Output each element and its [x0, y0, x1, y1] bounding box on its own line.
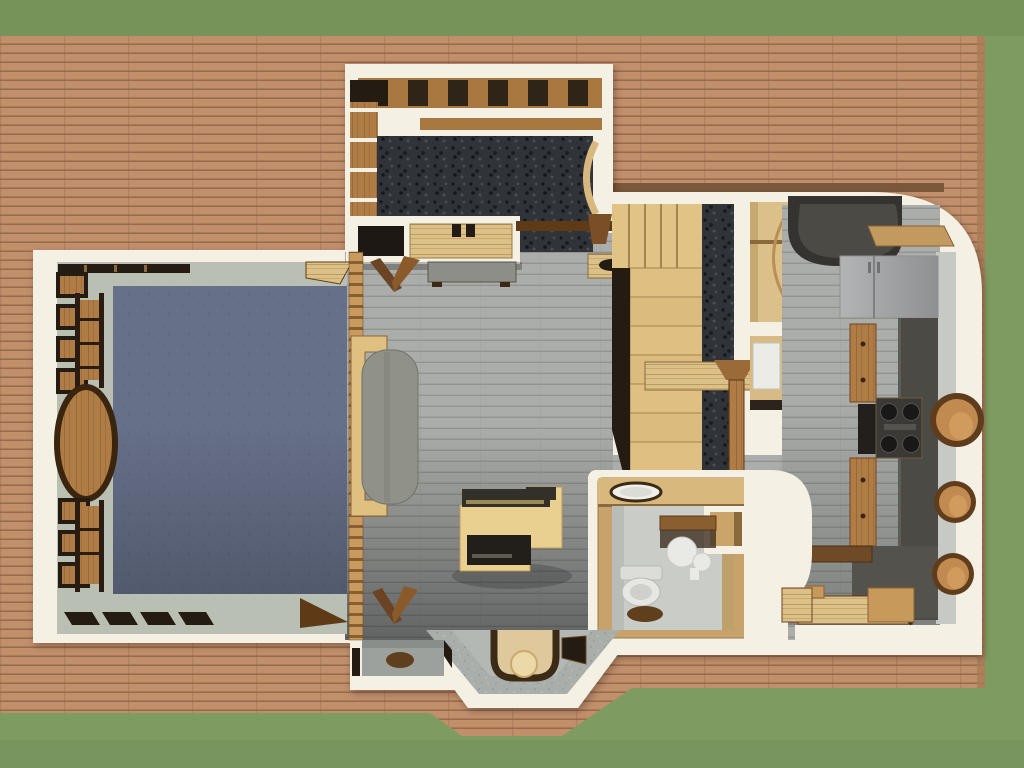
- cabinet-knob: [861, 514, 866, 519]
- upper-cabinets: [850, 324, 876, 402]
- cabinet-rung: [78, 318, 102, 321]
- oval-wood-table: [57, 387, 115, 499]
- tread: [630, 413, 704, 442]
- alcove-rug: [386, 652, 414, 668]
- beam-gap: [568, 80, 588, 106]
- window-mullion: [84, 265, 87, 272]
- bench-leg: [500, 282, 510, 287]
- cabinet-rung: [78, 552, 102, 555]
- burner: [881, 436, 898, 453]
- lawn-bottom-shade: [0, 740, 1024, 768]
- burner: [903, 404, 920, 421]
- stair-landing: [612, 204, 704, 268]
- bath-rug: [627, 606, 663, 622]
- landing-seam: [676, 204, 678, 268]
- tread: [630, 326, 704, 355]
- wall-shelf: [660, 516, 716, 530]
- cross-beam: [420, 118, 602, 130]
- shelf-divider: [350, 198, 378, 202]
- cabinet-knob: [861, 342, 866, 347]
- ladder-cabinet-upper: [75, 293, 104, 388]
- cabinet-rail: [99, 293, 104, 388]
- cabinet-rung: [78, 366, 102, 369]
- tread: [630, 442, 704, 471]
- cabinet-rail: [99, 500, 104, 592]
- wood-step: [782, 588, 812, 622]
- cabinet-knob: [861, 378, 866, 383]
- toilet-seat: [630, 584, 652, 600]
- fixture-pipe: [690, 568, 699, 580]
- burner: [881, 404, 898, 421]
- deck-beam: [598, 183, 944, 192]
- refrigerator: [840, 256, 938, 318]
- tread: [630, 297, 704, 326]
- cabinet-rung: [78, 528, 102, 531]
- shelf-divider: [350, 108, 378, 112]
- beam-gap: [488, 80, 508, 106]
- cooktop-strip: [884, 424, 916, 430]
- bedroom: [56, 252, 363, 640]
- alcove-slit-window: [352, 648, 360, 676]
- shelf-box: [60, 276, 84, 294]
- fridge-handle: [877, 262, 880, 273]
- clerestory-window-strip: [58, 264, 190, 273]
- landing-seam: [660, 204, 662, 268]
- cabinet-knob: [861, 478, 866, 483]
- round-mat: [511, 651, 537, 677]
- sunroom: [346, 78, 612, 270]
- porthole-light: [949, 495, 967, 517]
- fridge-handle: [868, 262, 871, 273]
- cubby-shade: [734, 512, 742, 546]
- lower-cabinets: [850, 458, 876, 546]
- desk-keys: [466, 500, 544, 504]
- fridge-door-seam: [873, 256, 875, 318]
- beam-gap: [528, 80, 548, 106]
- tread: [630, 268, 704, 297]
- oven: [858, 404, 876, 454]
- shelf-divider: [350, 138, 378, 142]
- shelf-top-cell: [350, 80, 378, 102]
- render-canvas: [0, 0, 1024, 768]
- porthole-light: [949, 412, 973, 440]
- cabinet-rung: [78, 342, 102, 345]
- wardrobe-side-shade: [750, 202, 758, 324]
- bathroom: [588, 470, 812, 646]
- counter-notch: [452, 224, 461, 237]
- lawn-top-shade: [0, 0, 1024, 36]
- cushion-seam: [384, 352, 390, 502]
- roof-beam-band: [358, 78, 602, 108]
- cabinet-rail: [75, 293, 80, 388]
- sofa: [351, 336, 418, 516]
- bench-leg: [432, 282, 442, 287]
- kneehole-floor: [472, 554, 512, 558]
- beam-gap: [448, 80, 468, 106]
- floorplan-render: [0, 0, 1024, 768]
- beam-gap: [408, 80, 428, 106]
- storage-box: [868, 588, 914, 622]
- sink-bowl: [620, 487, 652, 497]
- kitchen: [782, 196, 984, 625]
- counter-notch: [466, 224, 475, 237]
- ladder-cabinet-lower: [75, 500, 104, 592]
- counter-dark-cell: [358, 226, 404, 256]
- window-mullion: [144, 265, 147, 272]
- window-mullion: [114, 265, 117, 272]
- cabinet-panel: [80, 506, 99, 584]
- bedroom-carpet-shadow: [113, 286, 347, 594]
- alcove-wall-shade: [362, 640, 444, 648]
- shelf-divider: [350, 168, 378, 172]
- landing-seam: [644, 204, 646, 268]
- porthole-light: [947, 567, 965, 589]
- burner: [903, 436, 920, 453]
- stone-bench: [428, 262, 516, 282]
- desk-kneehole: [467, 535, 531, 565]
- appliance-box: [753, 343, 780, 389]
- desk-side-panel: [526, 487, 556, 500]
- cabinet-rail: [75, 500, 80, 592]
- landing-seam: [628, 204, 630, 268]
- corner-wood-counter: [868, 226, 954, 246]
- cylinder-fixture: [667, 537, 697, 567]
